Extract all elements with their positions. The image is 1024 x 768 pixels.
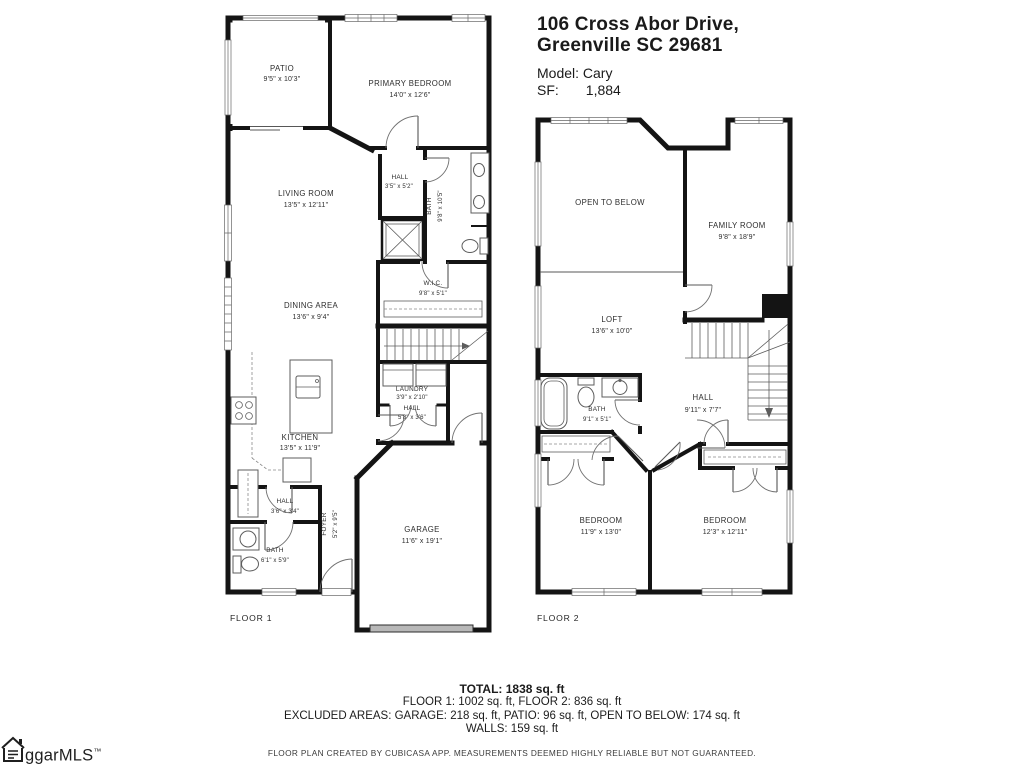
room-label-family-room: FAMILY ROOM (708, 221, 765, 230)
room-dims-garage: 11'6" x 19'1" (402, 538, 443, 545)
address-line2: Greenville SC 29681 (537, 35, 739, 56)
trademark-symbol: ™ (93, 747, 101, 756)
room-label-primary-bedroom: PRIMARY BEDROOM (369, 79, 452, 88)
room-dims-primary-bedroom: 14'0" x 12'6" (390, 92, 431, 99)
room-dims-hall-lower: 3'6" x 3'4" (271, 509, 299, 515)
logo-text: ggarMLS™ (25, 744, 102, 764)
room-dims-wic: 9'8" x 5'1" (419, 291, 447, 297)
house-logo-icon (0, 735, 28, 763)
summary-floors: FLOOR 1: 1002 sq. ft, FLOOR 2: 836 sq. f… (0, 696, 1024, 710)
sf-value: 1,884 (586, 82, 621, 98)
room-label-kitchen: KITCHEN (282, 433, 319, 442)
room-dims-patio: 9'5" x 10'3" (264, 76, 301, 83)
room-label-bath-lower: BATH (266, 547, 284, 554)
room-dims-hall-mid: 5'8" x 3'6" (398, 415, 426, 421)
room-label-laundry: LAUNDRY (396, 386, 429, 393)
summary-walls: WALLS: 159 sq. ft (0, 723, 1024, 737)
room-label-garage: GARAGE (404, 525, 439, 534)
square-footage: SF:1,884 (537, 82, 739, 99)
room-dims-bath-upper: 9'8" x 10'5" (438, 190, 444, 221)
room-label-bedroom-left: BEDROOM (580, 516, 623, 525)
room-dims-hall2: 9'11" x 7'7" (685, 407, 722, 414)
floor1-label: FLOOR 1 (230, 613, 272, 623)
room-label-patio: PATIO (270, 64, 294, 73)
bath-lower-fixtures (233, 528, 259, 573)
room-dims-bedroom-right: 12'3" x 12'11" (703, 529, 748, 536)
sf-label: SF: (537, 82, 559, 98)
room-dims-bath-lower: 6'1" x 5'9" (261, 558, 289, 564)
floor2-plan: OPEN TO BELOW FAMILY ROOM 9'8" x 18'9" L… (528, 108, 800, 628)
floor2-label: FLOOR 2 (537, 613, 579, 623)
room-label-loft: LOFT (601, 315, 622, 324)
room-label-bath-upper: BATH (426, 197, 433, 215)
room-label-wic: W.I.C. (424, 280, 443, 287)
garage-door (370, 625, 473, 632)
summary-total: TOTAL: 1838 sq. ft (0, 682, 1024, 696)
disclaimer: FLOOR PLAN CREATED BY CUBICASA APP. MEAS… (0, 748, 1024, 758)
room-label-living-room: LIVING ROOM (278, 189, 334, 198)
room-dims-laundry: 3'9" x 2'10" (396, 395, 427, 401)
floor1-plan: PATIO 9'5" x 10'3" PRIMARY BEDROOM 14'0"… (222, 8, 502, 640)
room-dims-bedroom-left: 11'9" x 13'0" (581, 529, 622, 536)
mls-logo: ggarMLS™ (0, 735, 102, 763)
room-dims-hall-upper: 3'5" x 5'2" (385, 184, 413, 190)
room-label-open-to-below: OPEN TO BELOW (575, 198, 645, 207)
room-dims-bath2: 9'1" x 5'1" (583, 417, 611, 423)
room-dims-living-room: 13'5" x 12'11" (284, 202, 329, 209)
header: 106 Cross Abor Drive, Greenville SC 2968… (537, 14, 739, 99)
address-line1: 106 Cross Abor Drive, (537, 14, 739, 35)
room-label-hall-lower: HALL (277, 498, 294, 505)
room-label-bedroom-right: BEDROOM (704, 516, 747, 525)
room-label-hall-mid: HALL (404, 405, 421, 412)
summary-excluded: EXCLUDED AREAS: GARAGE: 218 sq. ft, PATI… (0, 710, 1024, 724)
room-label-hall2: HALL (693, 393, 714, 402)
room-dims-family-room: 9'8" x 18'9" (719, 234, 756, 241)
room-dims-loft: 13'6" x 10'0" (592, 328, 633, 335)
floor-plan-page: 106 Cross Abor Drive, Greenville SC 2968… (0, 0, 1024, 768)
room-dims-kitchen: 13'5" x 11'9" (280, 445, 321, 452)
room-dims-dining: 13'6" x 9'4" (293, 314, 330, 321)
room-label-hall-upper: HALL (392, 174, 409, 181)
room-label-dining: DINING AREA (284, 301, 339, 310)
model-label: Model: Cary (537, 65, 739, 82)
room-label-bath2: BATH (588, 406, 606, 413)
room-dims-foyer: 5'2" x 9'5" (333, 510, 339, 538)
area-summary: TOTAL: 1838 sq. ft FLOOR 1: 1002 sq. ft,… (0, 682, 1024, 758)
room-label-foyer: FOYER (321, 512, 328, 535)
